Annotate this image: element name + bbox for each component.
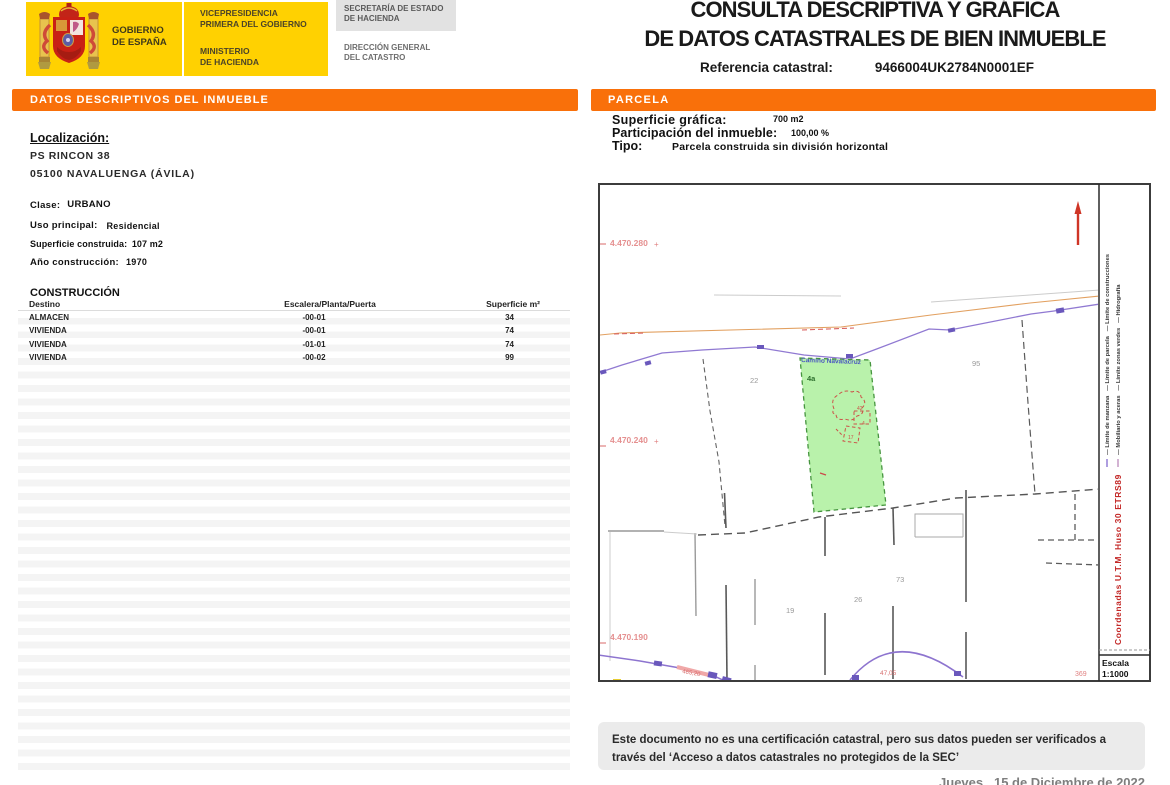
svg-text:Escala: Escala xyxy=(1102,658,1129,668)
svg-text:369: 369 xyxy=(1075,671,1087,678)
svg-text:4.470.280: 4.470.280 xyxy=(610,238,648,248)
svg-text:4.470.190: 4.470.190 xyxy=(610,632,648,642)
svg-text:Coordenadas U.T.M. Huso 30 ETR: Coordenadas U.T.M. Huso 30 ETRS89 xyxy=(1113,474,1123,645)
svg-text:22: 22 xyxy=(750,376,758,385)
svg-text:26: 26 xyxy=(854,595,862,604)
svg-text:4.470.240: 4.470.240 xyxy=(610,435,648,445)
svg-text:+: + xyxy=(654,240,659,249)
svg-text:1:1000: 1:1000 xyxy=(1102,669,1129,679)
svg-text:19: 19 xyxy=(786,606,794,615)
svg-text:42: 42 xyxy=(857,406,863,412)
svg-text:17: 17 xyxy=(848,435,854,441)
svg-text:+: + xyxy=(654,437,659,446)
svg-text:4: 4 xyxy=(862,421,865,427)
svg-text:— Mobiliario y aceras — Lími: — Mobiliario y aceras — Límite zonas ver… xyxy=(1116,284,1122,455)
svg-text:4a: 4a xyxy=(807,374,816,383)
svg-text:95: 95 xyxy=(972,359,980,368)
svg-text:47,05: 47,05 xyxy=(880,670,897,677)
svg-text:— Límite de manzana — Límite: — Límite de manzana — Límite de parcela … xyxy=(1105,254,1111,455)
svg-text:73: 73 xyxy=(896,575,904,584)
